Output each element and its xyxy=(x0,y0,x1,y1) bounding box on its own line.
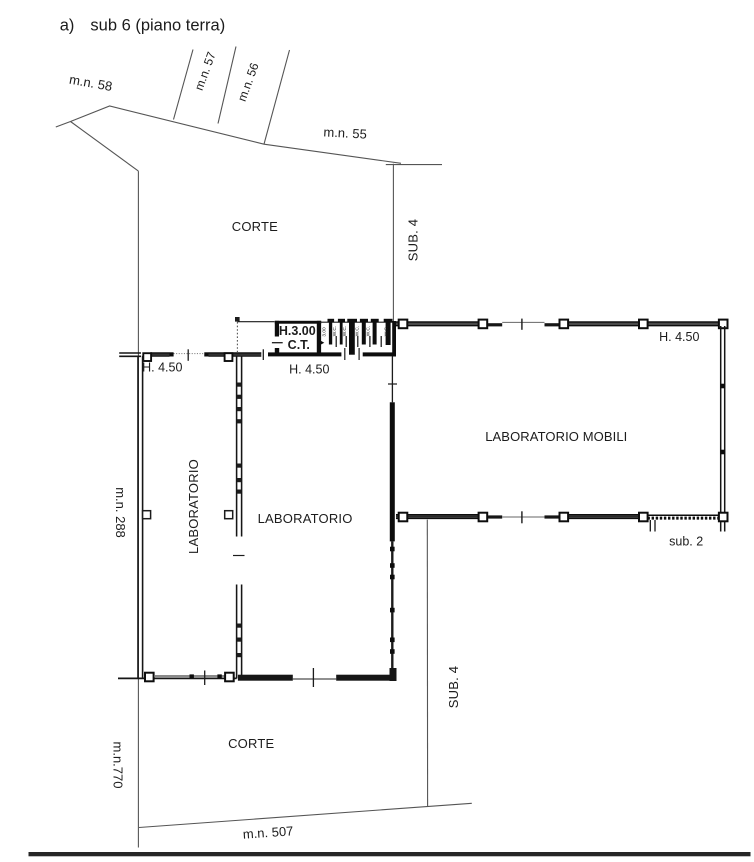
svg-text:LABORATORIO: LABORATORIO xyxy=(186,459,201,554)
svg-text:LABORATORIO: LABORATORIO xyxy=(258,511,353,526)
svg-text:LABORATORIO MOBILI: LABORATORIO MOBILI xyxy=(485,429,627,444)
svg-text:W.C.: W.C. xyxy=(342,326,348,336)
svg-text:m.n.770: m.n.770 xyxy=(111,742,126,789)
svg-text:sub. 2: sub. 2 xyxy=(669,535,703,549)
svg-text:CORTE: CORTE xyxy=(228,736,274,751)
svg-text:m.n. 288: m.n. 288 xyxy=(113,487,128,538)
svg-text:sub 6 (piano terra): sub 6 (piano terra) xyxy=(90,17,225,35)
svg-text:H. 4.50: H. 4.50 xyxy=(142,360,182,374)
svg-text:W.C.: W.C. xyxy=(384,326,390,336)
svg-text:a): a) xyxy=(60,17,75,35)
svg-text:H.3.00: H.3.00 xyxy=(279,324,316,338)
svg-text:3.00: 3.00 xyxy=(321,327,327,337)
svg-text:W.C.: W.C. xyxy=(366,326,372,336)
svg-text:SUB. 4: SUB. 4 xyxy=(405,219,420,261)
svg-text:W.C.: W.C. xyxy=(355,326,361,336)
svg-text:H. 4.50: H. 4.50 xyxy=(659,330,699,344)
svg-text:SUB. 4: SUB. 4 xyxy=(446,666,461,708)
svg-text:m.n. 55: m.n. 55 xyxy=(323,124,367,141)
svg-text:H. 4.50: H. 4.50 xyxy=(289,363,329,377)
svg-text:C.T.: C.T. xyxy=(288,338,310,352)
svg-text:W.C.: W.C. xyxy=(332,326,338,336)
svg-text:CORTE: CORTE xyxy=(232,219,278,234)
